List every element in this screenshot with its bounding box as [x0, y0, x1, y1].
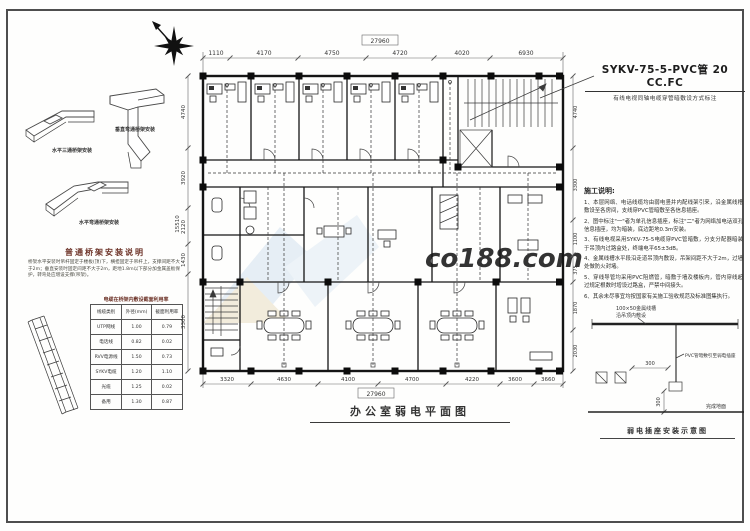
- svg-text:15510: 15510: [175, 215, 181, 233]
- fitting-caption-2: 垂直弯通桥架安装: [96, 128, 174, 134]
- tray-label-line2: 沿吊顶内敷设: [616, 312, 646, 319]
- dimension-right: 4740 3300 1100 375 1870 2030: [571, 74, 580, 374]
- elevator-shaft: [460, 130, 492, 167]
- conduit-label: PVC管暗敷引至弱电插座: [685, 352, 736, 359]
- svg-text:4220: 4220: [465, 377, 479, 383]
- note-item: 5、穿线导管均采用PVC阻燃管，暗敷于墙及楼板内，管内穿线超过规定根数时增设过路…: [584, 274, 743, 290]
- floor-plan: 1110 4170 4750 4720 4020 6930 27960 3320…: [178, 30, 598, 430]
- construction-notes: 施工说明: 1、本层网络、电话线缆均由弱电竖井内配线架引来，沿金属线槽敷设至各房…: [584, 186, 743, 303]
- socket-install-detail-drawing: 100×50金属线槽 沿吊顶内敷设 PVC管暗敷引至弱电插座 300 300 完…: [588, 302, 744, 424]
- table-row: 电话线0.820.02: [91, 335, 183, 350]
- svg-text:1430: 1430: [181, 253, 187, 267]
- fitting-caption-1: 水平三通桥架安装: [34, 149, 110, 155]
- fitting-caption-3: 水平弯通桥架安装: [56, 221, 142, 227]
- svg-text:4020: 4020: [454, 50, 469, 57]
- horizontal-dim: 300: [645, 361, 655, 367]
- construction-notes-title: 施工说明:: [584, 186, 743, 196]
- note-item: 3、有线电视采用SYKV-75-5电缆穿PVC管暗敷，分支分配器暗装于吊顶内过路…: [584, 236, 743, 252]
- svg-text:4750: 4750: [324, 50, 339, 57]
- floor-label: 完成地面: [706, 403, 726, 410]
- svg-text:2030: 2030: [573, 345, 579, 358]
- fill-ratio-table: 线缆类别 外径(mm) 截面利用率 UTP网线1.000.79 电话线0.820…: [90, 304, 183, 410]
- staircase-lower: [205, 286, 238, 336]
- svg-text:6930: 6930: [518, 50, 533, 57]
- cable-spec-block: SYKV-75-5-PVC管 20 CC.FC 有线电视同轴电缆穿管暗敷设方式标…: [585, 62, 745, 102]
- note-item: 4、金属线槽水平段沿走道吊顶内敷设，吊架间距不大于2m，过墙处做防火封堵。: [584, 255, 743, 271]
- svg-text:4720: 4720: [392, 50, 407, 57]
- svg-text:27960: 27960: [370, 38, 389, 45]
- svg-text:3320: 3320: [220, 377, 234, 383]
- svg-text:4740: 4740: [573, 106, 579, 119]
- table-row: 备用1.300.87: [91, 395, 183, 410]
- svg-text:2120: 2120: [181, 220, 187, 234]
- tray-notes-body: 桥架水平安装时吊杆固定于楼板(顶)下，横担固定于吊杆上，支撑间距不大于2m；垂直…: [28, 260, 180, 280]
- svg-text:3920: 3920: [181, 171, 187, 185]
- staircase-upper: [464, 79, 558, 127]
- svg-text:1100: 1100: [573, 233, 579, 246]
- office-desks: [207, 82, 438, 102]
- svg-text:3600: 3600: [508, 377, 522, 383]
- svg-text:4100: 4100: [341, 377, 355, 383]
- note-item: 6、其余未尽事宜均按国家有关施工验收规范及标准图集执行。: [584, 293, 743, 301]
- table-row: SYKV电缆1.201.10: [91, 365, 183, 380]
- tray-label-line1: 100×50金属线槽: [616, 305, 656, 312]
- svg-text:4630: 4630: [277, 377, 291, 383]
- plan-title: 办公室弱电平面图: [310, 403, 510, 423]
- table-row: RVV电源线1.500.73: [91, 350, 183, 365]
- table-row: UTP网线1.000.79: [91, 320, 183, 335]
- svg-text:4740: 4740: [181, 105, 187, 119]
- svg-text:1870: 1870: [573, 302, 579, 315]
- tray-fitting-elbow-drawing: [38, 162, 133, 222]
- svg-text:4170: 4170: [256, 50, 271, 57]
- cable-spec-sublabel: 有线电视同轴电缆穿管暗敷设方式标注: [585, 94, 745, 102]
- table-header-row: 线缆类别 外径(mm) 截面利用率: [91, 305, 183, 320]
- svg-text:27960: 27960: [366, 391, 385, 398]
- table-row: 光缆1.250.02: [91, 380, 183, 395]
- dimension-top: 1110 4170 4750 4720 4020 6930 27960: [201, 35, 566, 76]
- dimension-bottom: 3320 4630 4100 4700 4220 3600 3660 27960: [201, 371, 566, 398]
- svg-text:1110: 1110: [208, 50, 223, 57]
- tray-notes-title: 普通桥架安装说明: [32, 247, 178, 258]
- note-item: 2、图中标注"一"者为单孔信息插座，标注"二"者为网络加电话双孔信息插座，均为暗…: [584, 218, 743, 234]
- table-header-cell: 线缆类别: [91, 305, 122, 320]
- svg-text:3300: 3300: [573, 179, 579, 192]
- meeting-tables: [257, 311, 484, 340]
- fill-ratio-table-title: 电缆在桥架内敷设截面利用率: [86, 296, 186, 303]
- dimension-left: 4740 3920 2120 1430 3300 15510: [175, 74, 191, 374]
- vertical-dim: 300: [656, 397, 662, 407]
- svg-text:3660: 3660: [541, 377, 555, 383]
- svg-text:3300: 3300: [181, 315, 187, 329]
- cad-drawing-page: co188.com 水平三通桥架安装 垂直弯通桥架安装 水平弯通桥架安装 普通桥…: [0, 0, 750, 531]
- tray-fitting-tee-drawing: [20, 94, 102, 150]
- cable-tray-isometric-drawing: [12, 312, 80, 430]
- table-header-cell: 外径(mm): [122, 305, 152, 320]
- detail-caption: 弱电插座安装示意图: [600, 426, 735, 439]
- svg-text:375: 375: [573, 265, 579, 275]
- note-item: 1、本层网络、电话线缆均由弱电竖井内配线架引来，沿金属线槽敷设至各房间，支线穿P…: [584, 199, 743, 215]
- cable-spec-label: SYKV-75-5-PVC管 20 CC.FC: [585, 62, 745, 92]
- svg-text:4700: 4700: [405, 377, 419, 383]
